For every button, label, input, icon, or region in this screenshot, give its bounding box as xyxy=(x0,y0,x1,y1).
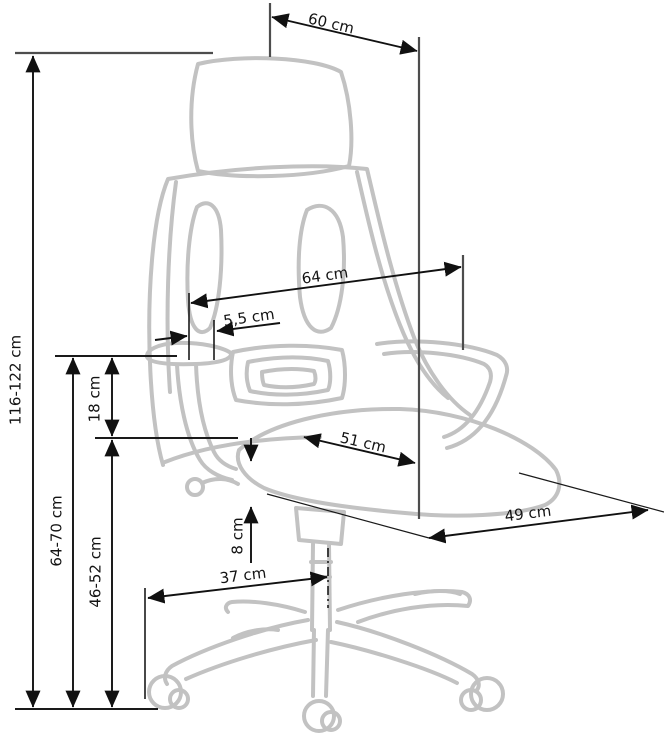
dimension-label-armrest-above-seat: 18 cm xyxy=(88,376,103,423)
dimension-label-seat-height: 46-52 cm xyxy=(89,536,104,607)
caster-left-icon xyxy=(149,676,188,708)
chair-headrest xyxy=(191,58,351,176)
dimension-diagram: 60 cm 116-122 cm 64 cm 5,5 cm 18 cm 51 c… xyxy=(0,0,664,755)
caster-front-icon xyxy=(304,701,340,731)
dim-armrest-offset-stub-left xyxy=(155,336,187,340)
caster-right-icon xyxy=(461,678,503,710)
chair-drawing xyxy=(147,58,559,731)
dimension-label-armrest-height: 64-70 cm xyxy=(50,495,65,566)
chair-gas-lift xyxy=(187,479,344,696)
chair-backrest xyxy=(149,166,470,465)
dimension-label-seat-thickness: 8 cm xyxy=(231,517,246,554)
dimension-label-total-height: 116-122 cm xyxy=(9,335,24,425)
dimension-lines xyxy=(33,17,648,707)
